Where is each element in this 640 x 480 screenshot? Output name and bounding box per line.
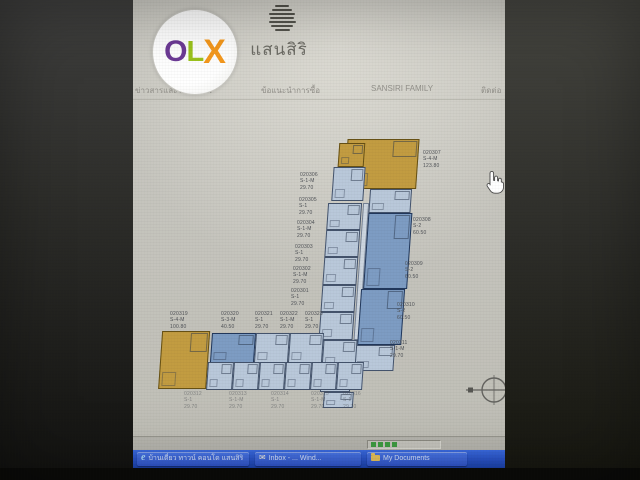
floorplan-unit[interactable] xyxy=(284,362,312,390)
unit-label: 020310S-260.50 xyxy=(397,302,415,321)
floorplan-unit[interactable] xyxy=(206,362,234,390)
taskbar-button-browser[interactable]: eบ้านเดี่ยว ทาวน์ คอนโด แสนสิริ xyxy=(137,452,249,466)
taskbar-button-my-documents[interactable]: My Documents xyxy=(367,452,467,466)
progress-block xyxy=(371,442,376,447)
unit-label: 020302S-1-M29.70 xyxy=(293,266,311,285)
floorplan-unit[interactable] xyxy=(326,203,362,230)
progress-block xyxy=(378,442,383,447)
folder-icon xyxy=(371,455,380,461)
taskbar-button-inbox[interactable]: ✉Inbox - ... Wind... xyxy=(255,452,361,466)
olx-letter: L xyxy=(186,36,204,69)
olx-letter: X xyxy=(203,33,226,72)
progress-block xyxy=(385,442,390,447)
unit-label: 020303S-129.70 xyxy=(295,244,313,263)
unit-label: 020315S-1-M29.70 xyxy=(311,391,329,410)
nav-item-contact[interactable]: ติดต่อ xyxy=(481,84,501,97)
unit-label: 020321S-129.70 xyxy=(255,311,273,330)
unit-label: 020304S-1-M29.70 xyxy=(297,220,315,239)
floorplan-unit[interactable] xyxy=(319,312,355,340)
floorplan-unit[interactable] xyxy=(210,333,256,363)
floorplan-unit[interactable] xyxy=(254,333,290,363)
photo-edge-left xyxy=(0,0,133,480)
floorplan-unit[interactable] xyxy=(258,362,286,390)
floorplan-unit[interactable] xyxy=(232,362,260,390)
sansiri-logo-icon xyxy=(267,3,297,33)
progress-block xyxy=(392,442,397,447)
photo-frame: แสนสิริ ข่าวสารและโปรโมชั่น ข้อแนะนำการซ… xyxy=(0,0,640,480)
floorplan-unit[interactable] xyxy=(310,362,338,390)
ie-icon: e xyxy=(141,453,145,463)
hand-cursor-icon xyxy=(485,170,505,196)
olx-letter: O xyxy=(164,35,187,69)
photo-edge-right xyxy=(505,0,640,480)
status-bar xyxy=(133,436,505,451)
olx-watermark: OLX xyxy=(152,9,238,95)
unit-label: 020307S-4-M123.80 xyxy=(423,150,441,169)
floorplan-unit[interactable] xyxy=(322,257,358,285)
unit-label: 020322S-1-M29.70 xyxy=(280,311,298,330)
unit-label: 020313S-1-M29.70 xyxy=(229,391,247,410)
unit-label: 020319S-4-M100.80 xyxy=(170,311,188,330)
unit-label: 020309S-260.50 xyxy=(405,261,423,280)
unit-label: 020320S-3-M40.50 xyxy=(221,311,239,330)
unit-label: 020312S-129.70 xyxy=(184,391,202,410)
progress-indicator xyxy=(367,440,441,449)
nav-separator xyxy=(133,99,505,100)
floorplan-unit[interactable] xyxy=(324,230,360,257)
unit-label: 020305S-129.70 xyxy=(299,197,317,216)
unit-label: 020311S-1-M29.70 xyxy=(390,340,408,359)
unit-label: 020301S-129.70 xyxy=(291,288,309,307)
photo-edge-bottom xyxy=(0,468,640,480)
floorplan-unit[interactable] xyxy=(338,143,366,167)
unit-label: 020314S-129.70 xyxy=(271,391,289,410)
floorplan-unit[interactable] xyxy=(158,331,210,389)
taskbar: eบ้านเดี่ยว ทาวน์ คอนโด แสนสิริ ✉Inbox -… xyxy=(133,450,505,468)
floorplan xyxy=(128,133,448,423)
floorplan-unit[interactable] xyxy=(336,362,364,390)
unit-label: 020323S-129.70 xyxy=(305,311,323,330)
brand-title: แสนสิริ xyxy=(233,36,325,63)
unit-label: 020316S-129.70 xyxy=(343,391,361,410)
nav-item-guide[interactable]: ข้อแนะนำการซื้อ xyxy=(261,84,320,97)
floorplan-unit[interactable] xyxy=(368,189,412,213)
unit-label: 020308S-260.50 xyxy=(413,217,431,236)
mail-icon: ✉ xyxy=(259,454,266,462)
floorplan-unit[interactable] xyxy=(331,167,365,201)
floorplan-unit[interactable] xyxy=(320,285,356,312)
nav-item-family[interactable]: SANSIRI FAMILY xyxy=(371,84,433,93)
floorplan-unit[interactable] xyxy=(288,333,324,363)
unit-label: 020306S-1-M29.70 xyxy=(300,172,318,191)
